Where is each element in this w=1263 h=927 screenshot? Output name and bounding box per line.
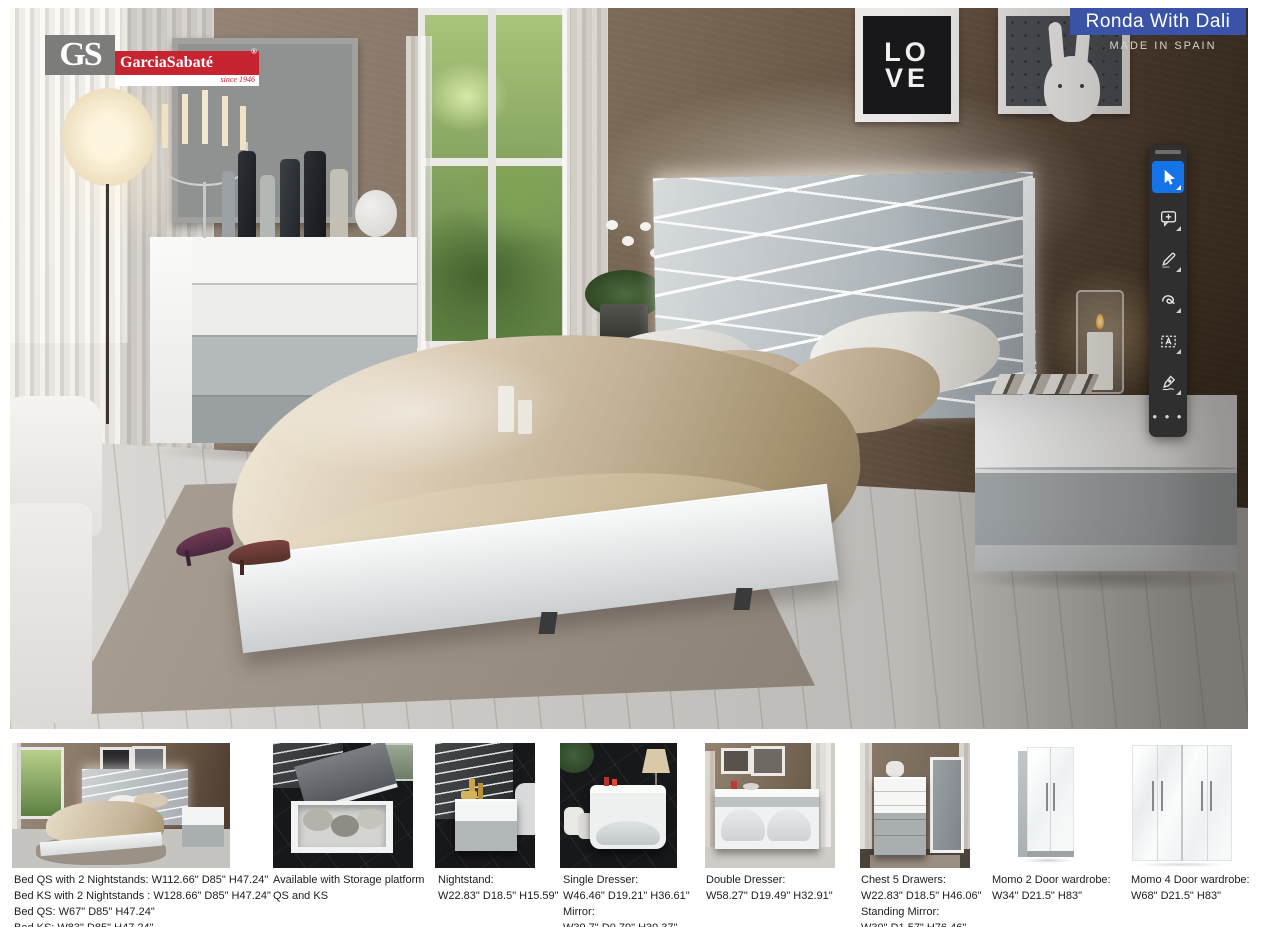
thumb-plinth [1027,851,1074,857]
caption-line: Bed QS with 2 Nightstands: W112.66" D85"… [14,872,271,888]
add-comment-icon [1159,209,1178,228]
caption-line: W34" D21.5" H83" [992,888,1111,904]
thumb-gold-tray [461,791,477,799]
thumb-door-seam [1157,745,1158,861]
text-box-icon [1159,332,1178,351]
thumb-handle [1152,781,1154,811]
registered-mark: ® [251,47,257,56]
collection-banner: Ronda With Dali [1070,8,1246,35]
thumb-stored-pillow [357,809,383,829]
thumb-nightstand [455,799,517,851]
fill-and-sign-button[interactable] [1152,366,1184,398]
caption-wardrobe-4door: Momo 4 Door wardrobe: W68" D21.5" H83" [1131,872,1250,904]
collection-title: Ronda With Dali [1086,11,1231,33]
thumb-decor-red [731,781,737,789]
caption-line: Bed KS with 2 Nightstands : W128.66" D85… [14,888,271,904]
thumb-perfume [604,777,609,786]
brand-name: GarciaSabaté [120,54,213,72]
thumb-bed-corner [515,783,535,835]
fill-and-sign-icon [1159,373,1178,392]
thumb-chest-seam [874,805,926,806]
thumb-greenery [560,743,594,773]
add-comment-button[interactable] [1152,202,1184,234]
thumb-shadow [1136,862,1228,867]
product-thumbnail-bed [12,743,230,868]
thumb-chest-seam [874,835,926,836]
caption-line: Available with Storage platform [273,872,424,888]
photo-vignette [10,8,1248,729]
product-thumbnail-chest [860,743,970,868]
thumb-frame [751,746,785,776]
thumb-handle [1201,781,1203,811]
thumb-gold-bottle [478,783,483,799]
caption-line: Double Dresser: [706,872,833,888]
thumb-stored-pillow [303,809,333,831]
caption-line: Standing Mirror: [861,904,982,920]
more-tools-button[interactable]: • • • [1153,409,1184,424]
brand-since: since 1946 [115,75,259,86]
flyout-indicator [1176,226,1181,231]
thumb-dresser-curve [596,821,660,845]
caption-line: W22.83" D18.5" H46.06" [861,888,982,904]
caption-single-dresser: Single Dresser: W46.46" D19.21" H36.61" … [563,872,690,927]
thumb-mirror [930,757,964,853]
flyout-indicator [1176,349,1181,354]
thumb-nightstand [182,807,224,847]
product-thumbnail-nightstand [435,743,535,868]
caption-nightstand: Nightstand: W22.83" D18.5" H15.59" [438,872,559,904]
caption-double-dresser: Double Dresser: W58.27" D19.49" H32.91" [706,872,833,904]
thumb-door-seam [1050,747,1051,857]
caption-line: QS and KS [273,888,424,904]
caption-line: Bed QS: W67" D85" H47.24" [14,904,271,920]
thumb-door-seam [1207,745,1208,861]
flyout-indicator [1176,308,1181,313]
caption-line: W30" D1.57" H76.46" [861,920,982,927]
thumb-decor [886,761,904,777]
thumb-handle [1053,783,1055,811]
brand-logo-name: GarciaSabaté ® [115,51,259,75]
thumb-curtain [12,743,21,838]
thumb-chest-seam [874,819,926,820]
thumb-stored-pillow [331,815,359,837]
thumb-chest-seam [874,791,926,792]
flyout-indicator [1176,185,1181,190]
thumb-handle [1161,781,1163,811]
caption-line: Mirror: [563,904,690,920]
thumb-lamp-shade [642,749,670,773]
toolbar-drag-handle[interactable] [1155,150,1181,154]
hero-bedroom-photo: LO VE [10,8,1248,729]
caption-line: W58.27" D19.49" H32.91" [706,888,833,904]
annotation-toolbar[interactable]: • • • [1149,145,1187,437]
caption-line: Momo 2 Door wardrobe: [992,872,1111,888]
thumb-shadow [1021,858,1074,863]
product-thumbnail-wardrobe-4door [1130,743,1235,868]
select-cursor-icon [1159,168,1178,187]
caption-line: Chest 5 Drawers: [861,872,982,888]
product-thumbnail-single-dresser [560,743,677,868]
caption-bed: Bed QS with 2 Nightstands: W112.66" D85"… [14,872,271,927]
highlight-pencil-icon [1159,250,1178,269]
caption-line: Momo 4 Door wardrobe: [1131,872,1250,888]
highlight-pencil-button[interactable] [1152,243,1184,275]
thumb-chest [874,777,926,855]
flyout-indicator [1176,390,1181,395]
thumb-handle [1210,781,1212,811]
text-box-button[interactable] [1152,325,1184,357]
thumb-wardrobe-side [1018,751,1027,857]
thumb-decor-bowl [743,783,759,790]
caption-line: W68" D21.5" H83" [1131,888,1250,904]
caption-line: W39.7" D0.79" H39.37" [563,920,690,927]
brand-initials: GS [59,36,100,74]
caption-line: Single Dresser: [563,872,690,888]
draw-lasso-button[interactable] [1152,284,1184,316]
draw-lasso-icon [1159,291,1178,310]
brochure-page: LO VE [0,0,1263,927]
product-thumbnail-wardrobe-2door [1013,743,1080,868]
caption-storage: Available with Storage platform QS and K… [273,872,424,904]
brand-logo-initials: GS [45,35,115,75]
made-in-label: MADE IN SPAIN [1108,40,1218,52]
thumb-door-seam [1181,745,1183,861]
caption-chest: Chest 5 Drawers: W22.83" D18.5" H46.06" … [861,872,982,927]
flyout-indicator [1176,267,1181,272]
thumb-perfume [612,779,617,786]
caption-line: W46.46" D19.21" H36.61" [563,888,690,904]
product-thumbnail-double-dresser [705,743,835,868]
thumb-frame [721,748,751,774]
thumb-handle [1046,783,1048,811]
thumb-window [18,747,64,819]
caption-line: Bed KS: W83" D85" H47.24" [14,920,271,927]
caption-line: W22.83" D18.5" H15.59" [438,888,559,904]
select-tool-button[interactable] [1152,161,1184,193]
thumb-rug [870,855,960,868]
product-thumbnail-storage [273,743,413,868]
caption-wardrobe-2door: Momo 2 Door wardrobe: W34" D21.5" H83" [992,872,1111,904]
caption-line: Nightstand: [438,872,559,888]
thumb-floor [705,847,835,868]
